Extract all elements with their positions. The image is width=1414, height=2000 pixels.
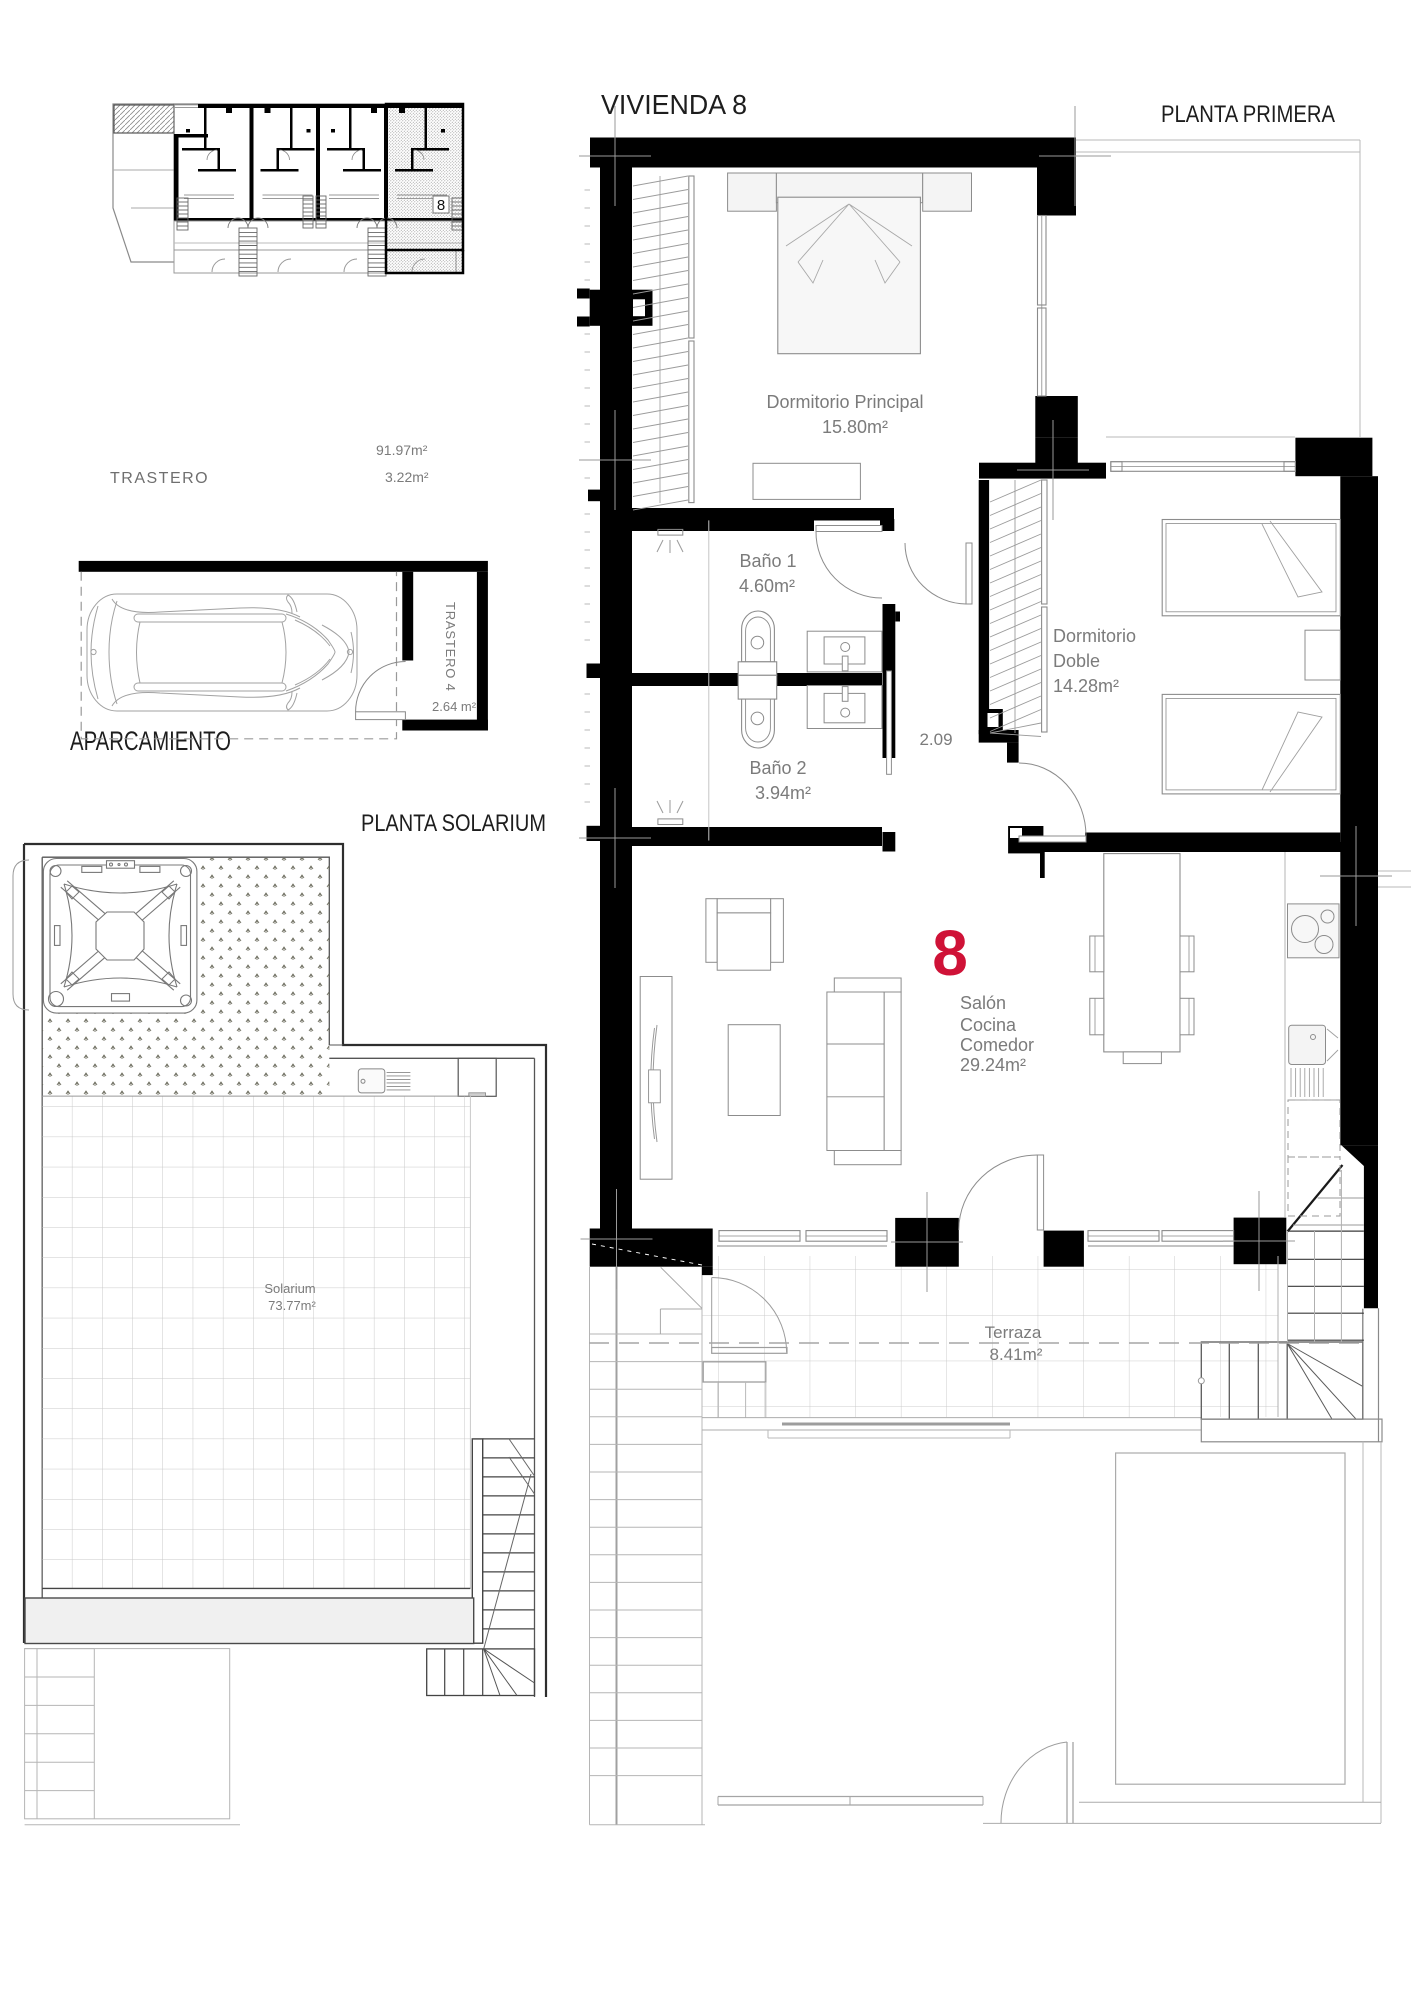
svg-text:Dormitorio Principal: Dormitorio Principal <box>766 392 923 412</box>
svg-text:Baño 1: Baño 1 <box>739 551 796 571</box>
svg-text:15.80m²: 15.80m² <box>822 417 888 437</box>
svg-text:PLANTA PRIMERA: PLANTA PRIMERA <box>1161 101 1335 128</box>
svg-text:Doble: Doble <box>1053 651 1100 671</box>
svg-text:Solarium: Solarium <box>264 1281 315 1296</box>
svg-text:PLANTA SOLARIUM: PLANTA SOLARIUM <box>361 810 546 837</box>
svg-text:TRASTERO 4: TRASTERO 4 <box>443 602 458 692</box>
svg-text:2.64 m²: 2.64 m² <box>432 699 477 714</box>
svg-text:3.94m²: 3.94m² <box>755 783 811 803</box>
svg-text:2.09: 2.09 <box>919 730 952 749</box>
svg-text:Comedor: Comedor <box>960 1035 1034 1055</box>
svg-text:8.41m²: 8.41m² <box>990 1345 1043 1364</box>
svg-text:Terraza: Terraza <box>985 1323 1042 1342</box>
svg-text:14.28m²: 14.28m² <box>1053 676 1119 696</box>
svg-text:4.60m²: 4.60m² <box>739 576 795 596</box>
svg-text:91.97m²: 91.97m² <box>376 442 428 458</box>
svg-text:8: 8 <box>932 917 968 989</box>
svg-text:Cocina: Cocina <box>960 1015 1017 1035</box>
svg-text:APARCAMIENTO: APARCAMIENTO <box>70 726 231 756</box>
svg-text:29.24m²: 29.24m² <box>960 1055 1026 1075</box>
svg-text:Baño 2: Baño 2 <box>749 758 806 778</box>
svg-text:3.22m²: 3.22m² <box>385 469 429 485</box>
svg-text:Salón: Salón <box>960 993 1006 1013</box>
svg-text:TRASTERO: TRASTERO <box>110 470 209 487</box>
svg-text:8: 8 <box>437 197 445 214</box>
svg-text:Dormitorio: Dormitorio <box>1053 626 1136 646</box>
svg-text:VIVIENDA 8: VIVIENDA 8 <box>601 89 747 120</box>
svg-text:73.77m²: 73.77m² <box>268 1298 316 1313</box>
